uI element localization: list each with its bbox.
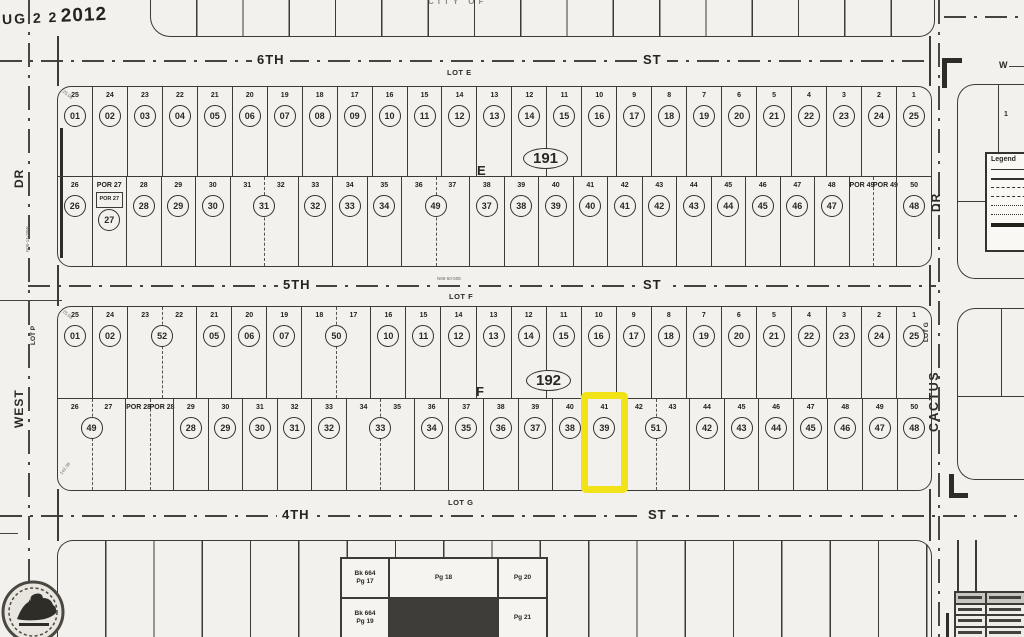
legend-line-thin	[991, 165, 1024, 174]
parcel-number-circle: 35	[455, 417, 477, 439]
parcel-number-circle: 25	[903, 325, 925, 347]
lot-cell: 3837	[469, 177, 504, 266]
road-edge-segment	[57, 36, 59, 86]
lot-g-label: LOT G	[448, 498, 473, 507]
lot-cell: 363749	[401, 177, 469, 266]
lot-number: 31	[243, 404, 277, 411]
corner-bracket-bottom	[949, 474, 968, 498]
road-edge-segment	[929, 489, 931, 541]
revision-table-cell	[955, 627, 986, 637]
parcel-number-circle: 16	[588, 325, 610, 347]
parcel-number-circle: 43	[683, 195, 705, 217]
parcel-number-circle: 27	[98, 209, 120, 231]
lot-cell: 2929	[161, 177, 196, 266]
lot-cell: 3332	[298, 177, 333, 266]
lot-cell: 313231	[230, 177, 298, 266]
lot-number: 4	[792, 92, 826, 99]
road-line-segment	[975, 540, 977, 591]
compass-w-label: W	[999, 60, 1008, 70]
west-lot-p-label: LOT P	[30, 326, 37, 345]
lot-cell: 2006	[232, 87, 267, 176]
parcel-number-circle: 07	[274, 105, 296, 127]
parcel-number-circle: 34	[421, 417, 443, 439]
lot-number: 41	[588, 404, 622, 411]
lot-number: 9	[617, 312, 651, 319]
lot-cell: 2928	[173, 399, 208, 490]
parcel-number-circle: 31	[253, 195, 275, 217]
lot-number: 10	[582, 312, 616, 319]
parcel-number-circle: 17	[623, 105, 645, 127]
lot-cell: 719	[686, 87, 721, 176]
lot-number: 45	[725, 404, 759, 411]
parcel-number-circle: 29	[214, 417, 236, 439]
block-192: 2501240223225221052006190718175016101511…	[57, 306, 932, 491]
lot-number: 7	[687, 312, 721, 319]
block-191: 2501240223032204210520061907180817091610…	[57, 86, 932, 267]
west-name-label: WEST	[12, 389, 26, 428]
bold-tick-bottom-right	[946, 613, 949, 637]
lot-number: 9	[617, 92, 651, 99]
parcel-number-circle: 49	[425, 195, 447, 217]
lot-cell: 4442	[689, 399, 724, 490]
lot-cell: 4241	[607, 177, 642, 266]
lot-number: 50	[897, 182, 931, 189]
lot-number: 23	[128, 92, 162, 99]
parcel-number-circle: 32	[304, 195, 326, 217]
lot-cell: 424351	[621, 399, 689, 490]
lot-cell: 1808	[302, 87, 337, 176]
lot-number: 47	[794, 404, 828, 411]
parcel-number-circle: 10	[379, 105, 401, 127]
lot-cell: 1610	[372, 87, 407, 176]
lot-cell: POR 27POR 2727	[92, 177, 127, 266]
parcel-number-circle: 20	[728, 105, 750, 127]
lot-number: 22	[163, 92, 197, 99]
lot-number: 32	[278, 404, 312, 411]
lot-number: 26	[58, 404, 92, 411]
por-inner-box: POR 27	[96, 192, 124, 208]
lot-number: 20	[233, 92, 267, 99]
street-6th-line	[0, 60, 932, 62]
parcel-number-circle: 12	[448, 105, 470, 127]
lot-cell: 1412	[441, 87, 476, 176]
lot-number: 45	[712, 182, 746, 189]
west-road-tick2	[0, 533, 18, 534]
parcel-number-circle: 15	[553, 105, 575, 127]
legend-line-dashed	[991, 183, 1024, 192]
lot-number: POR 27	[93, 182, 127, 189]
legend-line-dashdot	[991, 192, 1024, 201]
lot-cell: 4746	[780, 177, 815, 266]
lot-cell: POR 28POR 28	[125, 399, 173, 490]
road-edge-segment	[929, 265, 931, 306]
parcel-number-circle: 05	[204, 105, 226, 127]
lot-cell: 2105	[196, 307, 231, 398]
parcel-number-circle: 49	[81, 417, 103, 439]
parcel-number-circle: 01	[64, 325, 86, 347]
lot-number: 6	[722, 92, 756, 99]
lot-cell: 2204	[162, 87, 197, 176]
corner-bracket-top	[942, 58, 962, 88]
lot-cell: 3938	[504, 177, 539, 266]
page-index-cell: Bk 664 Pg 19	[341, 598, 389, 637]
parcel-number-circle: 42	[648, 195, 670, 217]
bearing-5th-label: N89-50-50E	[437, 276, 461, 281]
lot-cell: 262749	[58, 399, 125, 490]
lot-cell: 224	[861, 87, 896, 176]
revision-table-cell	[986, 615, 1024, 627]
parcel-number-circle: 12	[448, 325, 470, 347]
lot-number: 14	[441, 312, 475, 319]
block-192-row-south: 262749POR 28POR 282928302931303231333234…	[58, 398, 931, 490]
parcel-number-circle: 15	[553, 325, 575, 347]
revision-table	[954, 591, 1024, 637]
page-index-cell: Pg 21	[498, 598, 547, 637]
parcel-number-circle: 38	[559, 417, 581, 439]
parcel-number-circle: 21	[763, 325, 785, 347]
lot-number: 31	[231, 182, 265, 189]
lot-cell: 917	[616, 307, 651, 398]
highlighted-lot: 4139	[587, 399, 622, 490]
lot-number: 49	[863, 404, 897, 411]
parcel-number-circle: 32	[318, 417, 340, 439]
parcel-number-circle: 25	[903, 105, 925, 127]
parcel-number-circle: 10	[377, 325, 399, 347]
parcel-number-circle: 19	[693, 105, 715, 127]
parcel-number-circle: 14	[518, 105, 540, 127]
lot-cell: 4342	[642, 177, 677, 266]
lot-cell: 4140	[573, 177, 608, 266]
lot-cell: 125	[896, 87, 931, 176]
lot-number: 39	[519, 404, 553, 411]
lot-cell: 3433	[332, 177, 367, 266]
lot-number: 48	[828, 404, 862, 411]
lot-number: 26	[58, 182, 92, 189]
lot-number: 18	[302, 312, 336, 319]
parcel-number-circle: 24	[868, 105, 890, 127]
lot-cell: 5048	[896, 177, 931, 266]
parcel-number-circle: 33	[369, 417, 391, 439]
west-dr-centerline	[28, 0, 30, 637]
lot-cell: 181750	[301, 307, 370, 398]
lot-number: POR 49	[873, 182, 896, 189]
lot-number: 21	[198, 92, 232, 99]
lot-cell: 4645	[745, 177, 780, 266]
lot-cell: 818	[651, 87, 686, 176]
parcel-number-circle: 02	[99, 105, 121, 127]
parcel-number-circle: 13	[483, 105, 505, 127]
parcel-number-circle: 09	[344, 105, 366, 127]
parcel-number-circle: 41	[614, 195, 636, 217]
parcel-number-circle: 28	[180, 417, 202, 439]
lot-e-label: LOT E	[447, 68, 472, 77]
lot-number: 10	[582, 92, 616, 99]
parcel-number-circle: 44	[717, 195, 739, 217]
revision-table-cell	[986, 604, 1024, 616]
lot-number: 46	[746, 182, 780, 189]
parcel-number-circle: 22	[798, 105, 820, 127]
parcel-number-circle: 06	[239, 105, 261, 127]
lot-cell: 4947	[862, 399, 897, 490]
parcel-number-circle: 47	[869, 417, 891, 439]
parcel-number-circle: 04	[169, 105, 191, 127]
lot-number: 29	[162, 182, 196, 189]
lot-number: 17	[336, 312, 370, 319]
lot-number: 33	[312, 404, 346, 411]
parcel-number-circle: 26	[64, 195, 86, 217]
west-road-tick	[0, 300, 62, 301]
cactus-dr-centerline	[938, 0, 940, 637]
street-6th-name: 6TH	[252, 52, 290, 67]
parcel-number-circle: 38	[510, 195, 532, 217]
parcel-number-circle: 44	[765, 417, 787, 439]
lot-cell: 323	[826, 87, 861, 176]
parcel-number-circle: 43	[731, 417, 753, 439]
lot-number: 36	[415, 404, 449, 411]
lot-number: 39	[505, 182, 539, 189]
parcel-number-circle: 42	[696, 417, 718, 439]
lot-number: 20	[232, 312, 266, 319]
parcel-number-circle: 23	[833, 325, 855, 347]
lot-number: 16	[371, 312, 405, 319]
date-stamp-year: 2012	[60, 4, 107, 27]
lot-cell: 323	[826, 307, 861, 398]
lot-cell: 2501	[58, 87, 92, 176]
lot-cell: 1511	[405, 307, 440, 398]
lot-number: 5	[757, 312, 791, 319]
lot-number: 34	[347, 404, 381, 411]
lot-cell: 3231	[277, 399, 312, 490]
parcel-number-circle: 20	[728, 325, 750, 347]
lot-cell: 521	[756, 307, 791, 398]
lot-number: 24	[93, 92, 127, 99]
parcel-number-circle: 30	[249, 417, 271, 439]
lot-number: 35	[368, 182, 402, 189]
lot-number: 8	[652, 92, 686, 99]
road-edge-segment	[57, 489, 59, 541]
page-index-cell: Pg 20	[498, 558, 547, 598]
lot-number: 22	[162, 312, 196, 319]
page-index-current-page-cell	[389, 598, 498, 637]
parcel-number-circle: 48	[903, 195, 925, 217]
street-5th-line	[28, 285, 936, 287]
compass-w-line	[1009, 66, 1024, 67]
lot-number: 7	[687, 92, 721, 99]
parcel-number-circle: 29	[167, 195, 189, 217]
lot-number: 43	[643, 182, 677, 189]
road-edge-segment	[57, 265, 59, 306]
parcel-number-circle: 30	[202, 195, 224, 217]
lot-cell: 3534	[367, 177, 402, 266]
lot-number: 43	[656, 404, 690, 411]
lot-number: 42	[622, 404, 656, 411]
lot-number: 3	[827, 312, 861, 319]
lot-cell: 2626	[58, 177, 92, 266]
lot-cell: 2303	[127, 87, 162, 176]
lot-cell: 4544	[711, 177, 746, 266]
lot-cell: 1907	[267, 87, 302, 176]
lot-cell: 3836	[483, 399, 518, 490]
lot-number: 44	[690, 404, 724, 411]
block-191-number: 191	[523, 148, 568, 169]
parcel-number-circle: 52	[151, 325, 173, 347]
revision-table-cell	[955, 604, 986, 616]
east-block-divider	[958, 396, 1024, 397]
parcel-number-circle: 46	[786, 195, 808, 217]
road-line-segment	[957, 540, 959, 591]
lot-cell: 3332	[311, 399, 346, 490]
block-192-row-north: 2501240223225221052006190718175016101511…	[58, 307, 931, 398]
block-192-number: 192	[526, 370, 571, 391]
lot-number: 1	[897, 92, 931, 99]
lot-number: 32	[264, 182, 298, 189]
lot-number: 13	[477, 92, 511, 99]
lot-number: 29	[174, 404, 208, 411]
parcel-number-circle: 18	[658, 105, 680, 127]
west-dr-label: DR	[12, 169, 26, 188]
lot-cell: 620	[721, 87, 756, 176]
page-index-cell: Pg 18	[389, 558, 498, 598]
lot-number: 5	[757, 92, 791, 99]
lot-number: 41	[574, 182, 608, 189]
lot-number: 40	[553, 404, 587, 411]
lot-number: 16	[373, 92, 407, 99]
legend-line-dotted2	[991, 210, 1024, 219]
lot-cell: 818	[651, 307, 686, 398]
lot-cell: 1016	[581, 87, 616, 176]
lot-cell: 2105	[197, 87, 232, 176]
legend-line-thick	[991, 174, 1024, 183]
lot-cell: 1016	[581, 307, 616, 398]
lot-cell: 2402	[92, 87, 127, 176]
lot-number: 12	[512, 312, 546, 319]
lot-number: 35	[380, 404, 414, 411]
lot-cell: 3029	[208, 399, 243, 490]
lot-number: 23	[128, 312, 162, 319]
block-192-letter: F	[476, 384, 484, 399]
parcel-number-circle: 50	[325, 325, 347, 347]
lot-number: 17	[338, 92, 372, 99]
lot-number: 15	[408, 92, 442, 99]
county-seal	[0, 575, 71, 637]
lot-number: 19	[268, 92, 302, 99]
revision-table-header	[955, 592, 986, 604]
lot-cell: 422	[791, 87, 826, 176]
parcel-number-circle: 45	[800, 417, 822, 439]
parcel-number-circle: 39	[545, 195, 567, 217]
lot-number: 33	[299, 182, 333, 189]
parcel-number-circle: 18	[658, 325, 680, 347]
lot-cell: 620	[721, 307, 756, 398]
lot-number: POR 28	[126, 404, 149, 411]
road-edge-segment	[929, 36, 931, 86]
lot-number: 27	[92, 404, 126, 411]
parcel-number-circle: 28	[133, 195, 155, 217]
parcel-number-circle: 37	[476, 195, 498, 217]
lot-cell: 4847	[814, 177, 849, 266]
lot-cell: 232252	[127, 307, 196, 398]
lot-cell: 719	[686, 307, 721, 398]
revision-table-cell	[955, 615, 986, 627]
lot-cell: 3937	[518, 399, 553, 490]
date-stamp-text: UG 2 2	[2, 9, 59, 27]
lot-cell: 4038	[552, 399, 587, 490]
street-4th-name: 4TH	[277, 507, 315, 522]
lot-cell: 224	[861, 307, 896, 398]
lot-number: 13	[477, 312, 511, 319]
page-index-cell: Bk 664 Pg 17	[341, 558, 389, 598]
lot-number: 40	[539, 182, 573, 189]
lot-number: 2	[862, 312, 896, 319]
parcel-number-circle: 17	[623, 325, 645, 347]
parcel-number-circle: 08	[309, 105, 331, 127]
lot-number: POR 49	[850, 182, 873, 189]
lot-cell: 1709	[337, 87, 372, 176]
street-5th-st: ST	[638, 277, 667, 292]
lot-number: 38	[470, 182, 504, 189]
lot-cell: 343533	[346, 399, 414, 490]
revision-table-cell	[986, 627, 1024, 637]
lot-number: 48	[815, 182, 849, 189]
lot-number: 28	[127, 182, 161, 189]
revision-table-header	[986, 592, 1024, 604]
top-lot-strip	[150, 0, 935, 37]
block-191-row-south: 2626POR 27POR 27272828292930303132313332…	[58, 176, 931, 266]
parcel-number-circle: 01	[64, 105, 86, 127]
lot-number: 44	[677, 182, 711, 189]
lot-cell: 5048	[897, 399, 932, 490]
lot-cell: 4443	[676, 177, 711, 266]
legend-box: Legend	[985, 152, 1024, 252]
lot-number: 12	[512, 92, 546, 99]
lot-number: 11	[547, 312, 581, 319]
lot-number: 37	[436, 182, 470, 189]
lot-number: 2	[862, 92, 896, 99]
parcel-number-circle: 40	[579, 195, 601, 217]
parcel-number-circle: 51	[645, 417, 667, 439]
east-block-south	[957, 308, 1024, 480]
lot-cell: 4644	[758, 399, 793, 490]
legend-line-dotted	[991, 201, 1024, 210]
parcel-number-circle: 45	[752, 195, 774, 217]
lot-number: 42	[608, 182, 642, 189]
lot-cell: 3634	[414, 399, 449, 490]
lot-number: 1	[897, 312, 931, 319]
lot-number: 24	[93, 312, 127, 319]
legend-title: Legend	[991, 156, 1024, 163]
lot-number: 46	[759, 404, 793, 411]
lot-cell: POR 49POR 49	[849, 177, 897, 266]
lot-number: 34	[333, 182, 367, 189]
lot-cell: 2402	[92, 307, 127, 398]
parcel-number-circle: 16	[588, 105, 610, 127]
lot-number: 30	[209, 404, 243, 411]
west-bearing-label: N00-14-20W	[25, 226, 30, 252]
lot-cell: 1610	[370, 307, 405, 398]
parcel-number-circle: 36	[490, 417, 512, 439]
parcel-number-circle: 13	[483, 325, 505, 347]
east-block-divider	[1001, 309, 1002, 396]
lot-number: 18	[303, 92, 337, 99]
street-6th-st: ST	[638, 52, 667, 67]
lot-cell: 4846	[827, 399, 862, 490]
lot-cell: 3030	[195, 177, 230, 266]
parcel-number-circle: 37	[524, 417, 546, 439]
parcel-number-circle: 31	[283, 417, 305, 439]
block-191-letter: E	[477, 163, 486, 178]
lot-cell: 2828	[126, 177, 161, 266]
lot-cell: 1511	[407, 87, 442, 176]
